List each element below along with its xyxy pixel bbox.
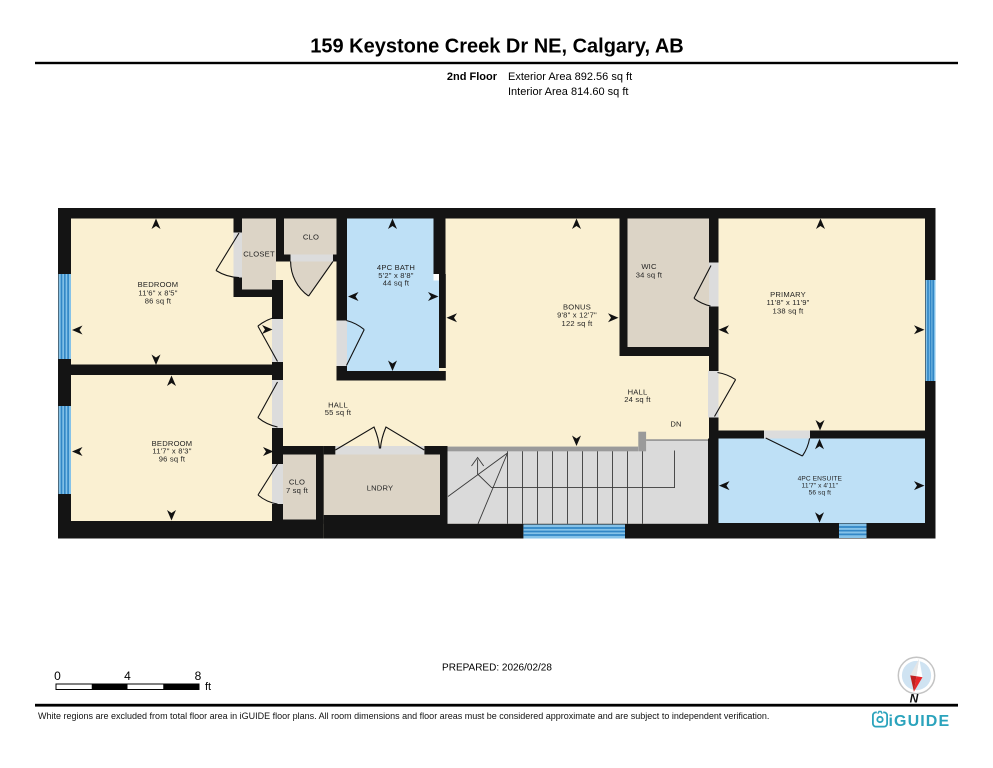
svg-text:0: 0 [54,669,61,683]
svg-text:24 sq ft: 24 sq ft [624,395,651,404]
svg-text:4PC ENSUITE: 4PC ENSUITE [798,475,843,482]
svg-text:11'7" x 4'11": 11'7" x 4'11" [802,482,839,489]
svg-text:44 sq ft: 44 sq ft [383,279,410,288]
svg-text:8: 8 [195,669,202,683]
svg-text:iGUIDE: iGUIDE [889,713,951,730]
svg-text:CLO: CLO [303,233,319,242]
svg-text:Interior Area 814.60 sq ft: Interior Area 814.60 sq ft [508,86,628,98]
svg-text:N: N [910,692,919,706]
svg-text:56 sq ft: 56 sq ft [809,489,831,496]
svg-text:34 sq ft: 34 sq ft [636,270,663,279]
svg-text:138 sq ft: 138 sq ft [773,306,805,315]
svg-text:55 sq ft: 55 sq ft [325,408,352,417]
svg-text:DN: DN [670,420,681,429]
svg-text:LNDRY: LNDRY [367,484,394,493]
svg-text:ft: ft [205,681,211,693]
svg-text:86 sq ft: 86 sq ft [145,296,172,305]
svg-text:Exterior Area 892.56 sq ft: Exterior Area 892.56 sq ft [508,71,632,83]
svg-text:4: 4 [124,669,131,683]
svg-text:PREPARED: 2026/02/28: PREPARED: 2026/02/28 [442,663,552,674]
svg-text:159 Keystone Creek Dr NE, Calg: 159 Keystone Creek Dr NE, Calgary, AB [310,36,684,58]
svg-text:96 sq ft: 96 sq ft [159,454,186,463]
svg-text:CLOSET: CLOSET [243,249,275,258]
svg-text:White regions are excluded fro: White regions are excluded from total fl… [38,711,769,721]
svg-text:7 sq ft: 7 sq ft [286,486,309,495]
svg-text:122 sq ft: 122 sq ft [562,319,594,328]
svg-text:2nd Floor: 2nd Floor [447,71,498,83]
